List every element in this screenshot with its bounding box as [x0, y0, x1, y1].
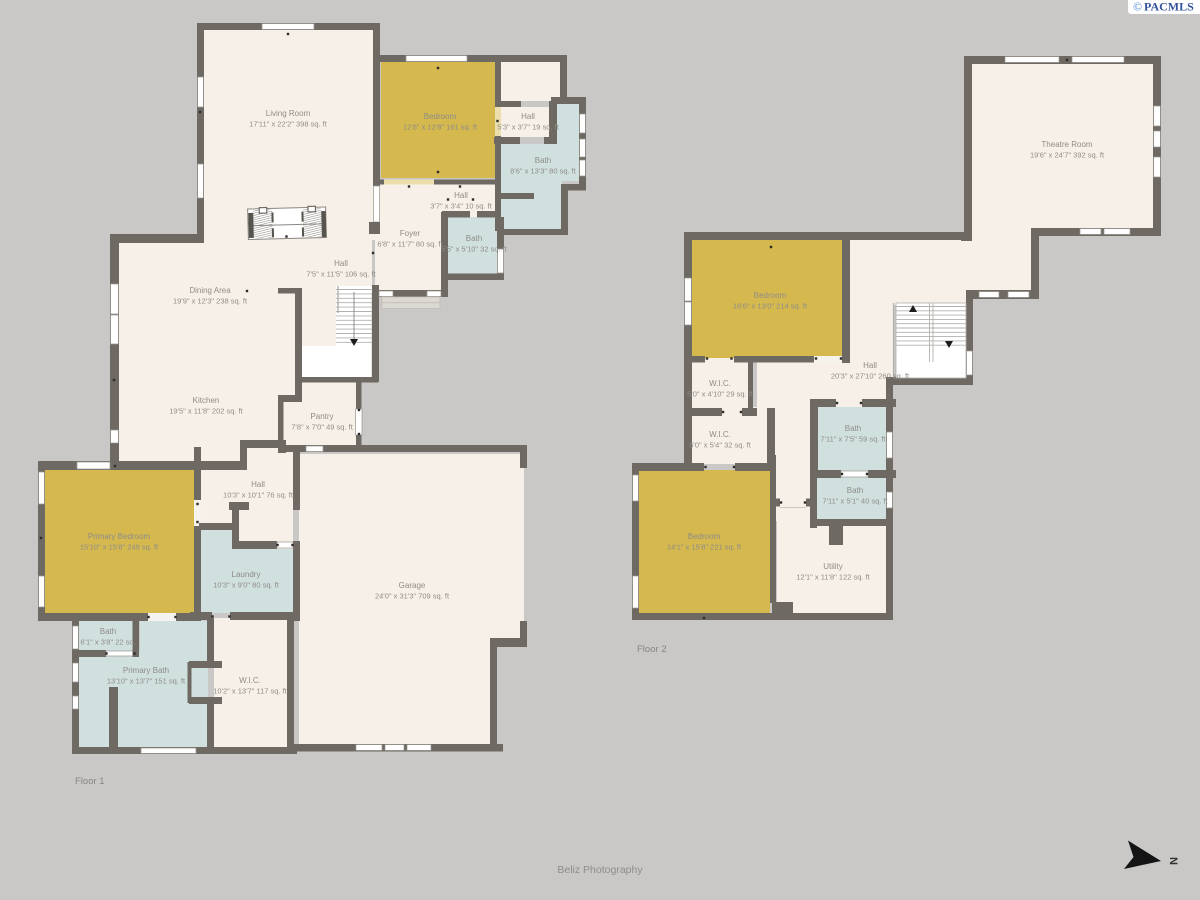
svg-text:Floor 2: Floor 2	[637, 644, 667, 655]
svg-text:Bath: Bath	[847, 486, 863, 495]
svg-text:Kitchen: Kitchen	[193, 396, 220, 405]
svg-text:17'11" x 22'2" 398 sq. ft: 17'11" x 22'2" 398 sq. ft	[249, 120, 328, 129]
svg-text:6'0" x 5'4" 32 sq. ft: 6'0" x 5'4" 32 sq. ft	[689, 441, 751, 450]
svg-text:24'0" x 31'3" 709 sq. ft: 24'0" x 31'3" 709 sq. ft	[375, 592, 450, 601]
svg-text:19'5" x 11'8" 202 sq. ft: 19'5" x 11'8" 202 sq. ft	[169, 407, 243, 416]
svg-text:7'8" x 7'0" 49 sq. ft: 7'8" x 7'0" 49 sq. ft	[291, 423, 353, 432]
svg-text:10'3" x 10'1" 76 sq. ft: 10'3" x 10'1" 76 sq. ft	[223, 491, 294, 500]
svg-text:Hall: Hall	[454, 191, 468, 200]
svg-text:Hall: Hall	[863, 361, 877, 370]
svg-text:Beliz Photography: Beliz Photography	[557, 864, 643, 876]
svg-text:Bedroom: Bedroom	[424, 112, 457, 121]
svg-text:7'5" x 11'5" 106 sq. ft: 7'5" x 11'5" 106 sq. ft	[306, 270, 376, 279]
svg-text:Bath: Bath	[100, 627, 116, 636]
svg-text:3'7" x 3'4" 10 sq. ft: 3'7" x 3'4" 10 sq. ft	[430, 202, 492, 211]
svg-text:6'8" x 11'7" 80 sq. ft: 6'8" x 11'7" 80 sq. ft	[377, 240, 443, 249]
svg-text:19'6" x 24'7" 392 sq. ft: 19'6" x 24'7" 392 sq. ft	[1030, 151, 1105, 160]
svg-text:7'11" x 5'1" 40 sq. ft: 7'11" x 5'1" 40 sq. ft	[822, 497, 888, 506]
svg-text:Pantry: Pantry	[310, 412, 333, 421]
svg-text:19'9" x 12'3" 238 sq. ft: 19'9" x 12'3" 238 sq. ft	[173, 297, 248, 306]
svg-text:5'5" x 5'10" 32 sq. ft: 5'5" x 5'10" 32 sq. ft	[441, 245, 508, 254]
svg-text:PACMLS: PACMLS	[1144, 0, 1194, 14]
svg-text:20'3" x 27'10" 260 sq. ft: 20'3" x 27'10" 260 sq. ft	[831, 372, 910, 381]
svg-text:Theatre Room: Theatre Room	[1041, 140, 1092, 149]
svg-text:Hall: Hall	[521, 112, 535, 121]
svg-text:5'3" x 3'7" 19 sq. ft: 5'3" x 3'7" 19 sq. ft	[497, 123, 559, 132]
svg-text:14'1" x 15'8" 221 sq. ft: 14'1" x 15'8" 221 sq. ft	[667, 543, 742, 552]
svg-text:10'2" x 13'7" 117 sq. ft: 10'2" x 13'7" 117 sq. ft	[213, 687, 287, 696]
svg-text:Bedroom: Bedroom	[754, 291, 787, 300]
svg-text:7'11" x 7'5" 59 sq. ft: 7'11" x 7'5" 59 sq. ft	[820, 435, 886, 444]
svg-text:10'3" x 9'0" 80 sq. ft: 10'3" x 9'0" 80 sq. ft	[213, 581, 280, 590]
svg-text:W.I.C.: W.I.C.	[709, 430, 731, 439]
svg-text:Utility: Utility	[823, 562, 843, 571]
svg-text:Bedroom: Bedroom	[688, 532, 721, 541]
svg-text:16'6" x 13'0" 214 sq. ft: 16'6" x 13'0" 214 sq. ft	[733, 302, 808, 311]
svg-text:5'0" x 4'10" 29 sq. ft: 5'0" x 4'10" 29 sq. ft	[687, 390, 754, 399]
svg-text:Garage: Garage	[399, 581, 426, 590]
svg-text:15'10" x 15'8" 249 sq. ft: 15'10" x 15'8" 249 sq. ft	[80, 543, 159, 552]
svg-text:Bath: Bath	[845, 424, 861, 433]
svg-text:©: ©	[1133, 0, 1142, 14]
svg-text:Hall: Hall	[334, 259, 348, 268]
svg-text:W.I.C.: W.I.C.	[239, 676, 261, 685]
svg-text:12'8" x 12'8" 161 sq. ft: 12'8" x 12'8" 161 sq. ft	[403, 123, 478, 132]
svg-text:Primary Bedroom: Primary Bedroom	[88, 532, 151, 541]
svg-text:Dining Area: Dining Area	[189, 286, 231, 295]
svg-text:Laundry: Laundry	[232, 570, 261, 579]
svg-text:13'10" x 13'7" 151 sq. ft: 13'10" x 13'7" 151 sq. ft	[107, 677, 186, 686]
svg-text:Hall: Hall	[251, 480, 265, 489]
svg-text:8'6" x 13'3" 80 sq. ft: 8'6" x 13'3" 80 sq. ft	[510, 167, 577, 176]
svg-text:Floor 1: Floor 1	[75, 776, 105, 787]
svg-text:Living Room: Living Room	[266, 109, 311, 118]
svg-text:W.I.C.: W.I.C.	[709, 379, 731, 388]
svg-text:Foyer: Foyer	[400, 229, 421, 238]
svg-text:12'1" x 11'8" 122 sq. ft: 12'1" x 11'8" 122 sq. ft	[796, 573, 870, 582]
svg-text:Primary Bath: Primary Bath	[123, 666, 169, 675]
svg-text:Bath: Bath	[535, 156, 551, 165]
svg-text:N: N	[1167, 857, 1179, 865]
svg-text:6'1" x 3'8" 22 sq.: 6'1" x 3'8" 22 sq.	[80, 638, 135, 647]
svg-text:Bath: Bath	[466, 234, 482, 243]
